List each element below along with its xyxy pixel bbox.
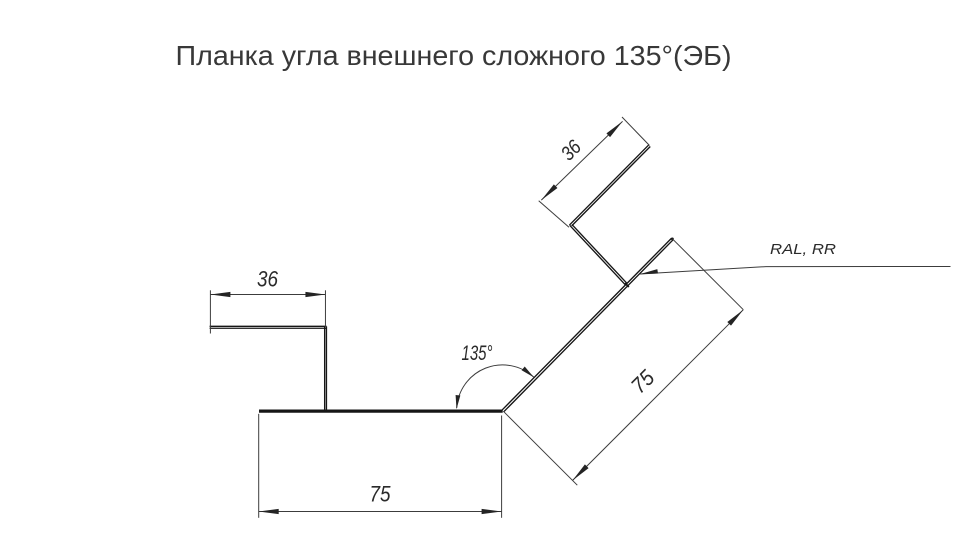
svg-text:Планка угла внешнего сложного: Планка угла внешнего сложного 135°(ЭБ) <box>176 39 732 71</box>
svg-text:135°: 135° <box>462 341 493 365</box>
svg-text:36: 36 <box>257 267 279 292</box>
svg-text:RAL, RR: RAL, RR <box>770 241 836 258</box>
svg-text:75: 75 <box>370 482 392 507</box>
